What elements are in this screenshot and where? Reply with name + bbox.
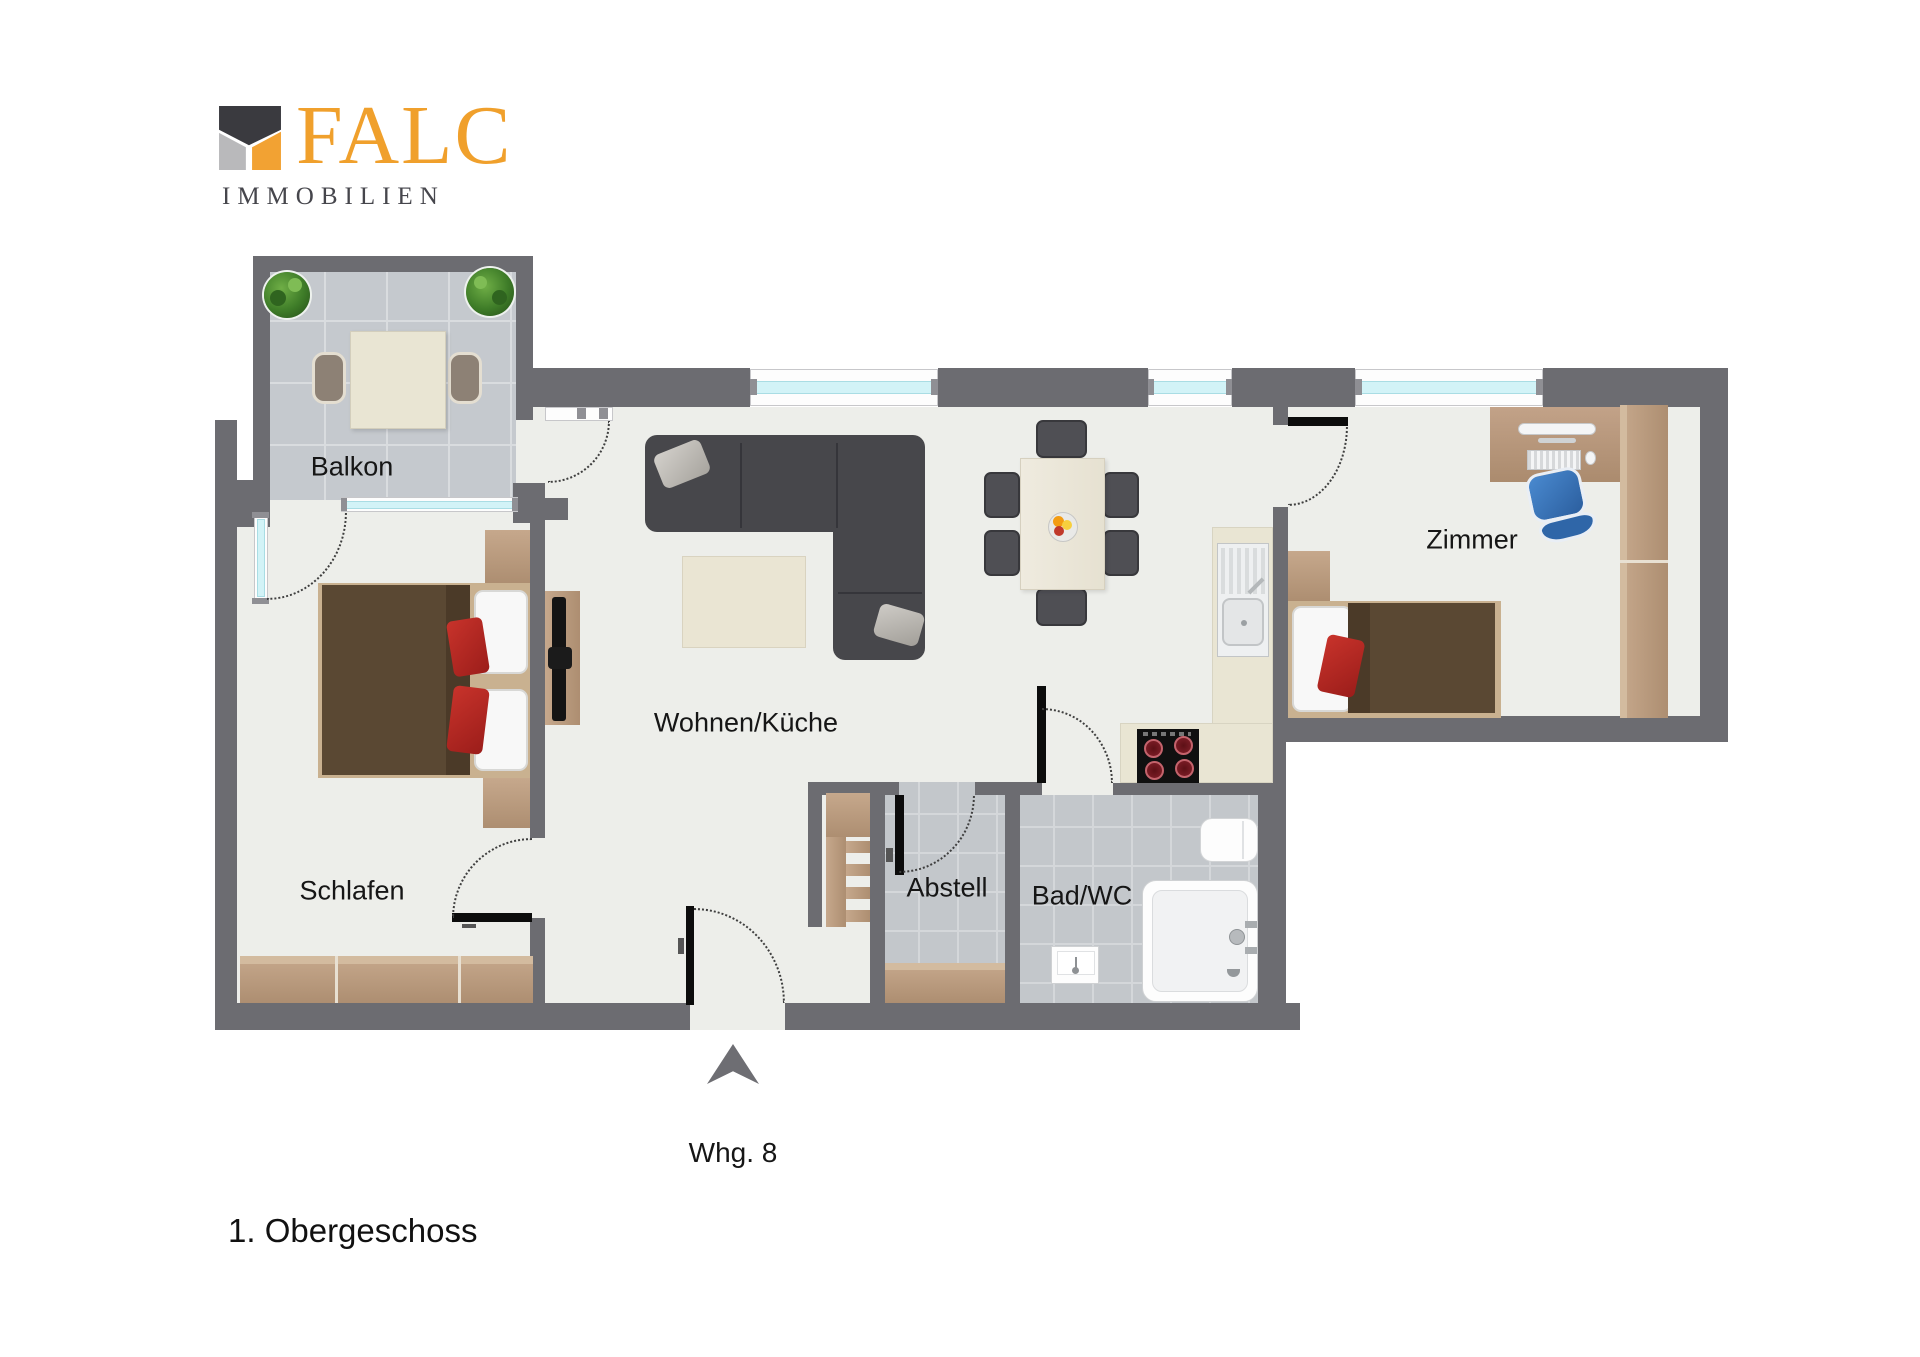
nightstand: [483, 778, 530, 828]
office-chair: [1523, 468, 1599, 560]
door-handle: [462, 924, 476, 928]
sink-drainboard: [1221, 548, 1265, 594]
toilet: [1200, 818, 1258, 862]
door-jamb: [599, 408, 608, 419]
stove: [1137, 729, 1199, 783]
wall-top-2: [938, 368, 1148, 407]
room-label-balkon: Balkon: [311, 452, 394, 483]
window-cap: [1148, 379, 1154, 395]
floor-entrance-doorway: [690, 1003, 785, 1030]
monitor: [1518, 423, 1596, 435]
monitor-stand: [1538, 438, 1576, 443]
wall-right-outer: [1700, 368, 1728, 742]
wall-zimmer-kitchen: [1273, 507, 1288, 742]
door-jamb: [577, 408, 586, 419]
wall-zimmer-bottom: [1288, 716, 1728, 742]
shower-head: [1229, 929, 1245, 945]
burner: [1175, 759, 1194, 778]
balcony-sliding-door-glass: [345, 501, 514, 509]
entrance-arrow-icon: [707, 1044, 759, 1084]
wardrobe-schlafen: [240, 956, 533, 1003]
window-cap: [1536, 379, 1543, 395]
keyboard: [1527, 450, 1581, 470]
room-label-abstell: Abstell: [906, 873, 987, 904]
balcony-chair: [448, 352, 482, 404]
window-cap: [931, 379, 938, 395]
abstell-shelf-tooth: [846, 841, 870, 853]
balcony-plant: [264, 272, 310, 318]
room-label-bad-wc: Bad/WC: [1032, 881, 1133, 912]
dining-chair: [1103, 472, 1139, 518]
window-living-1-glass: [756, 381, 932, 394]
nightstand: [1288, 551, 1330, 601]
mouse: [1585, 451, 1596, 465]
wall-zimmer-stub: [1273, 407, 1288, 425]
abstell-shelf-tooth: [846, 864, 870, 876]
shower-fitting: [1245, 921, 1257, 928]
single-bed: [1288, 601, 1501, 718]
sofa-seam: [740, 443, 742, 528]
abstell-shelf-tooth: [846, 887, 870, 899]
bed-blanket: [1348, 603, 1495, 713]
floor-zimmer-doorway: [1273, 425, 1288, 507]
room-label-schlafen: Schlafen: [299, 876, 404, 907]
abstell-cabinet: [885, 963, 1005, 1003]
logo-subtitle-text: IMMOBILIEN: [222, 183, 445, 211]
floor-plan-page: FALC IMMOBILIEN: [0, 0, 1920, 1357]
door-handle: [678, 938, 684, 954]
floor-schlafen-doorway: [530, 838, 545, 918]
floor-bad-doorway: [1042, 783, 1113, 795]
wardrobe-zimmer: [1620, 405, 1668, 718]
bad-sink: [1051, 946, 1099, 984]
zimmer-door-leaf: [1288, 417, 1348, 426]
rug: [682, 556, 806, 648]
door-handle: [886, 848, 893, 862]
balcony-table: [350, 331, 446, 429]
room-label-zimmer: Zimmer: [1426, 525, 1517, 556]
wall-top-1: [516, 368, 750, 407]
window-cap: [750, 379, 757, 395]
wall-abstell-left-vert: [808, 782, 822, 927]
nightstand: [485, 530, 530, 583]
wall-top-3: [1232, 368, 1355, 407]
wall-bottom-east: [785, 1003, 1300, 1030]
falc-logo-mark-icon: [219, 106, 281, 170]
window-zimmer-glass: [1361, 381, 1537, 394]
kitchen-sink-unit: [1217, 543, 1269, 657]
falc-logo: [219, 106, 281, 170]
burner: [1174, 736, 1193, 755]
floor-title: 1. Obergeschoss: [228, 1212, 477, 1250]
window-cap: [1226, 379, 1232, 395]
abstell-shelf-rail: [826, 837, 846, 927]
wall-schlafen-upper: [530, 523, 545, 838]
burner: [1145, 761, 1164, 780]
balcony-door-leaf-glass: [257, 519, 265, 597]
wall-abstell-bad-divider: [1005, 782, 1020, 1003]
burner: [1144, 739, 1163, 758]
fruit-bowl: [1048, 512, 1078, 542]
abstell-shelf-tooth: [846, 910, 870, 922]
dining-chair: [1103, 530, 1139, 576]
balcony-chair: [312, 352, 346, 404]
abstell-shelf: [826, 793, 870, 837]
entrance-label: Whg. 8: [689, 1137, 778, 1169]
dining-chair: [1036, 588, 1087, 626]
dining-chair: [984, 530, 1020, 576]
wall-bad-top: [1113, 783, 1286, 795]
room-label-wohnen-kueche: Wohnen/Küche: [654, 708, 838, 739]
window-living-2-glass: [1152, 381, 1228, 394]
double-bed: [318, 583, 530, 778]
sofa-seam: [838, 592, 922, 594]
logo-brand-text: FALC: [296, 94, 512, 178]
window-cap: [1355, 379, 1362, 395]
window-cap: [341, 498, 347, 511]
entrance-door-leaf: [686, 906, 694, 1005]
sofa-seam: [836, 443, 838, 528]
tv-mount: [548, 647, 572, 669]
dining-chair: [984, 472, 1020, 518]
balcony-plant: [466, 268, 514, 316]
sink-basin: [1222, 598, 1264, 646]
window-cap: [512, 498, 518, 511]
wall-abstell-hall: [870, 782, 885, 1003]
shower: [1142, 880, 1258, 1002]
wall-bottom-west: [215, 1003, 690, 1030]
wall-schlafen-t-stub: [545, 498, 568, 520]
shower-fitting: [1245, 947, 1257, 954]
dining-chair: [1036, 420, 1087, 458]
